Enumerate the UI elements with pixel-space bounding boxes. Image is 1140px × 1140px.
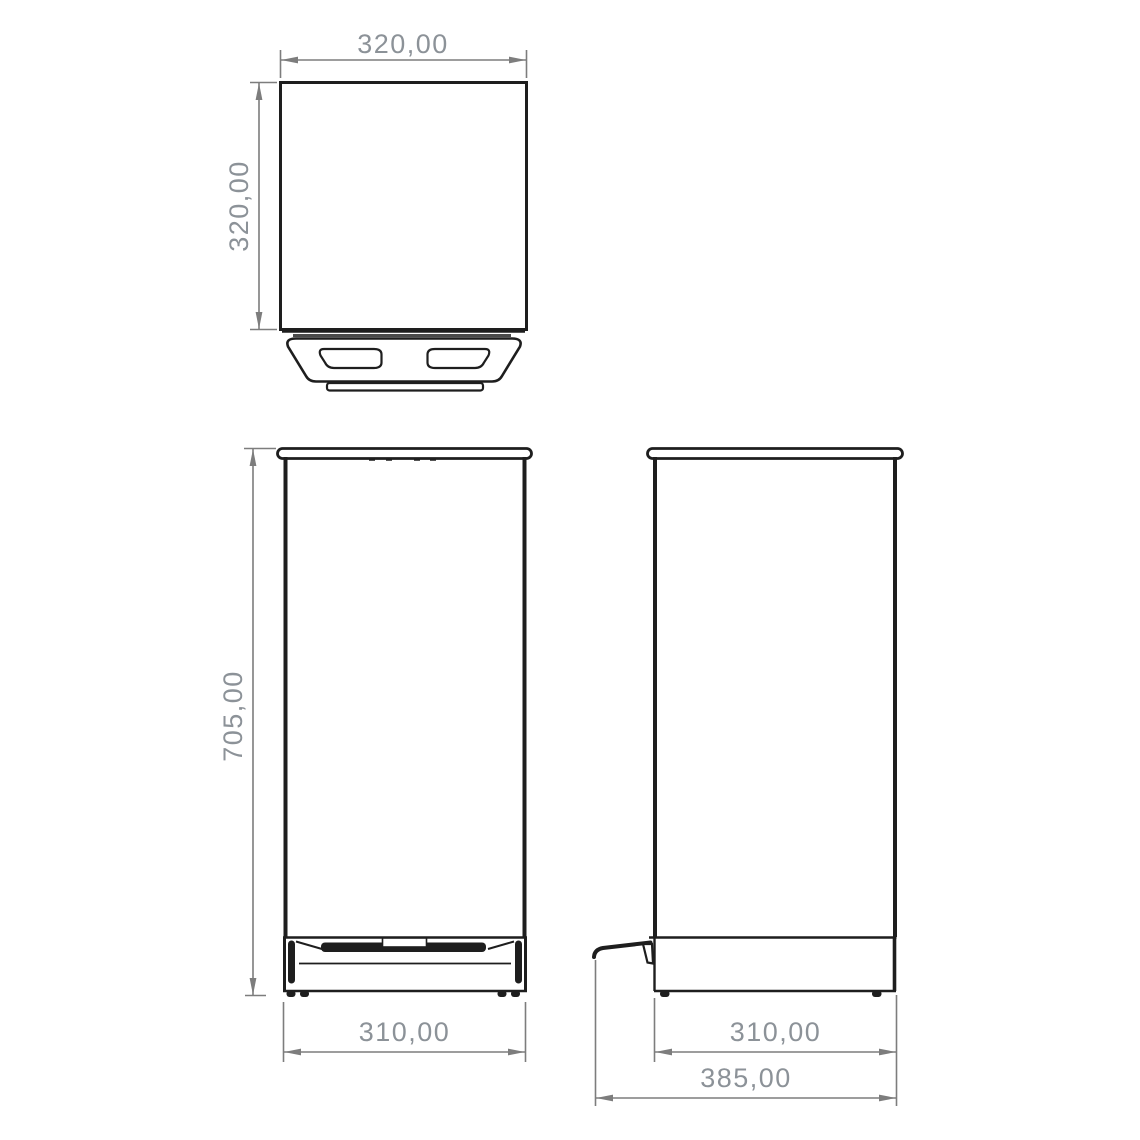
top-view [281,83,527,391]
technical-drawing-canvas: 320,00 320,00 705,00 310,00 [0,0,1140,1140]
bin-top-outline [281,83,527,330]
pedal-center-tab [383,938,427,947]
dimension-top-depth: 320,00 [224,83,277,330]
dim-label-top-width: 320,00 [357,29,449,59]
base-slot-right [428,349,490,368]
dimension-top-width: 320,00 [281,29,527,78]
pedal-front-edge [327,383,483,391]
dim-label-front-width: 310,00 [359,1017,451,1047]
pedal-bin-dimension-drawing: 320,00 320,00 705,00 310,00 [0,0,1140,1140]
lid-rim [278,449,532,459]
dim-label-side-depth: 310,00 [730,1017,822,1047]
dimension-front-height: 705,00 [218,449,276,996]
dim-label-side-overall-depth: 385,00 [700,1063,792,1093]
foot-pedal-lever [594,943,651,958]
lid-rim-side [648,449,903,459]
side-view [594,449,903,998]
pedal-bracket [643,944,653,964]
dim-label-front-height: 705,00 [218,670,248,762]
dimension-front-width: 310,00 [284,1002,526,1062]
dim-label-top-depth: 320,00 [224,160,254,252]
base-slot-left [320,349,382,368]
front-view [278,449,532,998]
